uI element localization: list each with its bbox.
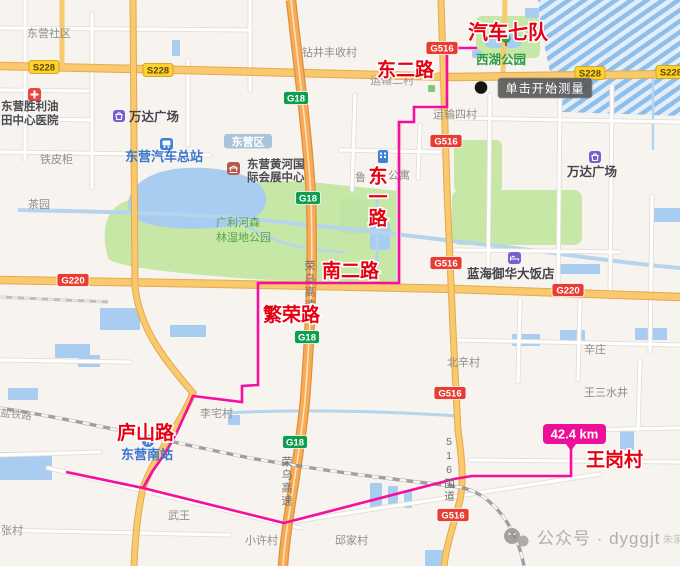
- label-rongwu-expressway: 荣乌高速: [280, 456, 293, 508]
- label-wetland-park-line2: 林湿地公园: [216, 230, 271, 244]
- badge-s228: S228: [660, 68, 680, 79]
- district-badge: 东营区: [224, 134, 272, 149]
- route-label-nan-er-lu: 南二路: [322, 259, 380, 282]
- label-xihu-park: 西湖公园: [476, 52, 526, 67]
- label-wanda-west: 万达广场: [128, 109, 179, 124]
- route-label-dong-er-lu: 东二路: [377, 58, 435, 81]
- label-zhang-village: 东张村: [0, 523, 23, 537]
- route-label-lu-shan-lu: 庐山路: [117, 421, 175, 444]
- badge-g516: G516: [434, 137, 457, 148]
- badge-g18: G18: [287, 94, 305, 105]
- route-start-label: 汽车七队: [468, 20, 549, 44]
- mall-icon: [113, 110, 125, 122]
- label-lizhai-village: 李宅村: [200, 406, 233, 420]
- label-wanda-east: 万达广场: [566, 164, 617, 179]
- label-wuwang: 武王: [168, 509, 190, 522]
- map-svg: S228 S228 S228 S228 G18 G18 G18 G18 G220…: [0, 0, 680, 566]
- green-poi-icon: [428, 85, 435, 92]
- badge-g18: G18: [286, 438, 304, 449]
- label-hospital-line2: 田中心医院: [1, 113, 59, 127]
- label-apartment-part1: 鲁: [355, 170, 366, 184]
- watermark-text: 公众号 · dyggjt: [537, 529, 660, 548]
- badge-g220: G220: [61, 276, 84, 287]
- label-tiepigui: 铁皮柜: [40, 153, 73, 166]
- route-end-label: 王岗村: [586, 448, 643, 471]
- label-hospital-line1: 东营胜利油: [1, 99, 59, 113]
- badge-g18: G18: [299, 194, 317, 205]
- badge-s228: S228: [147, 66, 169, 77]
- hotel-bed-icon: [508, 252, 521, 264]
- badge-g220: G220: [556, 286, 579, 297]
- label-wangsan-shuijing: 王三水井: [584, 385, 628, 399]
- label-xinzhuang: 辛庄: [584, 342, 606, 356]
- district-badge-label: 东营区: [232, 135, 265, 149]
- badge-g516: G516: [434, 259, 457, 270]
- map-canvas[interactable]: S228 S228 S228 S228 G18 G18 G18 G18 G220…: [0, 0, 680, 566]
- label-qiujia-village: 邱家村: [335, 533, 368, 547]
- label-convention-line1: 东营黄河国: [247, 157, 305, 171]
- badge-g516: G516: [441, 511, 464, 522]
- distance-badge-text: 42.4 km: [551, 427, 599, 442]
- hospital-icon: [28, 88, 41, 101]
- route-label-dong-yi-lu: 东一路: [366, 165, 388, 229]
- label-zhujia: 朱家: [663, 533, 680, 546]
- label-apartment-part2: 公寓: [388, 168, 410, 182]
- cursor-dot: [475, 81, 488, 94]
- label-zuanjing-village: 钻井丰收村: [302, 45, 357, 59]
- label-yunshu-si: 运输四村: [433, 107, 477, 121]
- apartment-icon: [378, 150, 388, 163]
- route-label-fan-rong-lu: 繁荣路: [263, 303, 321, 326]
- label-dongying-shequ: 东营社区: [27, 26, 71, 40]
- label-516-national-road: 516国道: [443, 436, 455, 503]
- badge-s228: S228: [33, 63, 55, 74]
- label-convention-line2: 际会展中心: [247, 170, 305, 184]
- measure-tooltip-text: 单击开始测量: [505, 82, 584, 96]
- badge-g516: G516: [430, 44, 453, 55]
- label-lanhai-hotel: 蓝海御华大饭店: [467, 266, 555, 281]
- label-beixin-village: 北辛村: [447, 355, 480, 369]
- mall-icon: [589, 151, 601, 163]
- badge-g516: G516: [438, 389, 461, 400]
- label-xiaoxu-village: 小许村: [245, 533, 278, 547]
- label-south-station: 东营南站: [121, 447, 173, 462]
- label-bus-station: 东营汽车总站: [125, 149, 203, 164]
- label-wetland-park-line1: 广利河森: [216, 215, 260, 229]
- convention-center-icon: [227, 162, 240, 175]
- label-chayuan: 茶园: [28, 198, 50, 211]
- measure-tooltip: 单击开始测量: [498, 78, 592, 98]
- badge-g18: G18: [298, 333, 316, 344]
